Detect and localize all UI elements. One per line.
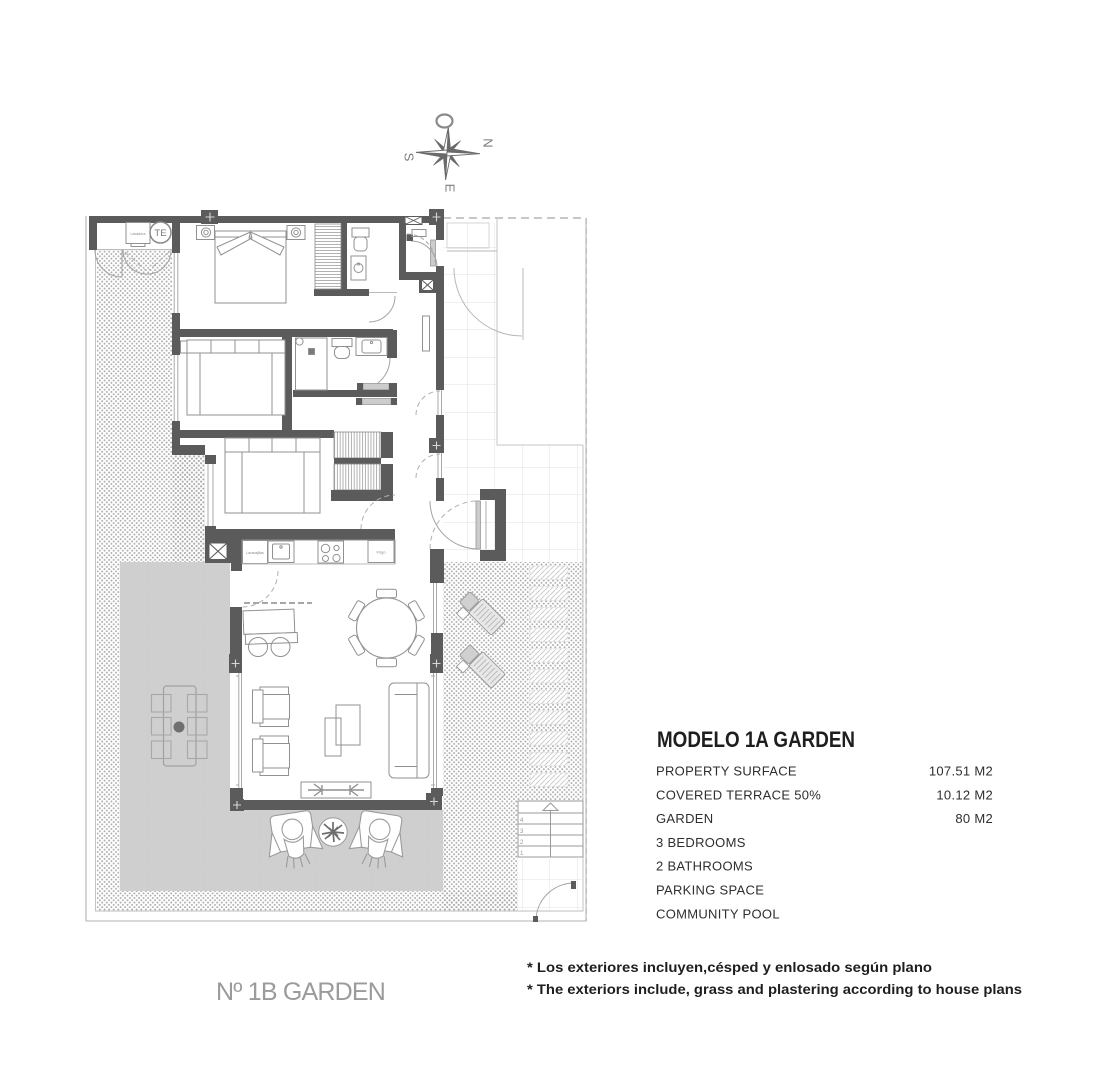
svg-text:80 M2: 80 M2 (955, 811, 993, 826)
svg-text:MODELO 1A GARDEN: MODELO 1A GARDEN (657, 727, 855, 752)
svg-text:* The exteriors include, grass: * The exteriors include, grass and plast… (527, 981, 1022, 997)
svg-text:GARDEN: GARDEN (656, 811, 713, 826)
svg-text:N: N (481, 138, 496, 147)
svg-text:4: 4 (520, 817, 524, 824)
svg-text:2: 2 (520, 839, 524, 846)
svg-text:TE: TE (154, 228, 166, 239)
svg-text:PROPERTY SURFACE: PROPERTY SURFACE (656, 764, 797, 779)
svg-text:3 BEDROOMS: 3 BEDROOMS (656, 835, 746, 850)
svg-text:Nº 1B GARDEN: Nº 1B GARDEN (216, 978, 385, 1006)
svg-text:1: 1 (520, 850, 524, 857)
svg-text:Lavavajillas: Lavavajillas (246, 551, 264, 555)
svg-text:COMMUNITY POOL: COMMUNITY POOL (656, 906, 780, 921)
svg-text:PARKING SPACE: PARKING SPACE (656, 883, 764, 898)
svg-text:3: 3 (520, 828, 524, 835)
svg-text:2 BATHROOMS: 2 BATHROOMS (656, 859, 753, 874)
svg-text:E: E (443, 184, 458, 193)
svg-text:107.51 M2: 107.51 M2 (929, 764, 993, 779)
svg-text:Lavadora: Lavadora (131, 232, 146, 236)
svg-text:10.12 M2: 10.12 M2 (936, 787, 993, 802)
svg-text:* Los exteriores incluyen,césp: * Los exteriores incluyen,césped y enlos… (527, 959, 932, 975)
svg-text:Frigo: Frigo (376, 550, 386, 555)
svg-text:COVERED TERRACE 50%: COVERED TERRACE 50% (656, 787, 821, 802)
svg-text:S: S (402, 153, 417, 162)
